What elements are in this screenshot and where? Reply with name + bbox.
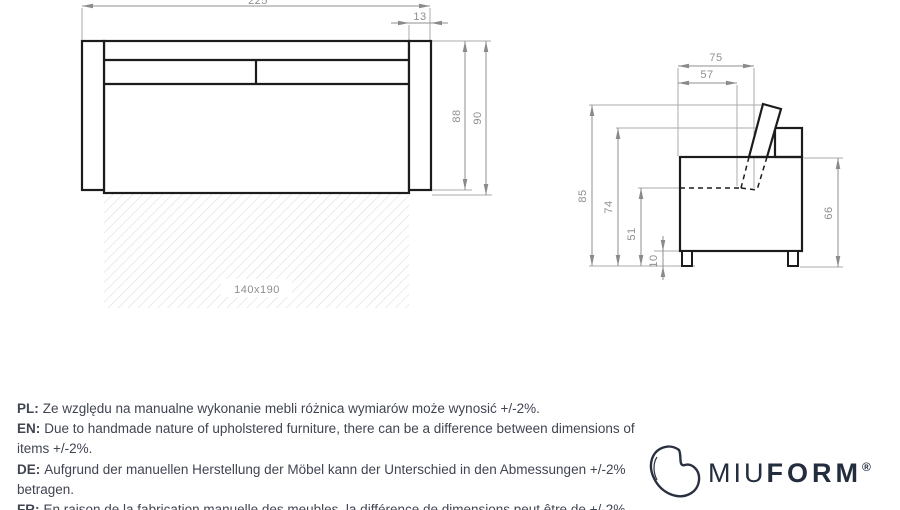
logo-miu: MIU: [708, 458, 767, 489]
note-fr-text: En raison de la fabrication manuelle des…: [44, 502, 629, 510]
note-de-text: Aufgrund der manuellen Herstellung der M…: [17, 462, 625, 497]
note-pl-label: PL:: [17, 401, 39, 416]
side-seat-depth-dim-label: 57: [700, 69, 713, 81]
sofa-front-left-armrest: [82, 41, 104, 190]
note-de-label: DE:: [17, 462, 40, 477]
side-total-height-dim-label: 85: [577, 189, 589, 202]
note-en-label: EN:: [17, 421, 40, 436]
registered-mark: ®: [862, 460, 873, 474]
front-body-height-dim-label: 88: [451, 109, 463, 122]
note-pl: PL:Ze względu na manualne wykonanie mebl…: [17, 399, 657, 419]
sofa-front-right-armrest: [409, 41, 431, 190]
front-width-dim-label: 225: [248, 0, 268, 7]
side-view: 75 57 85 74 51 10 66: [577, 52, 843, 280]
side-back-height-dim-label: 74: [603, 200, 615, 213]
front-total-height-dim-label: 90: [472, 111, 484, 124]
note-en: EN:Due to handmade nature of upholstered…: [17, 419, 657, 459]
note-de: DE:Aufgrund der manuellen Herstellung de…: [17, 460, 657, 500]
miuform-wordmark: MIUFORM®: [708, 458, 873, 489]
sofa-side-back: [775, 128, 802, 157]
note-fr-label: FR:: [17, 502, 40, 510]
side-seat-height-dim-label: 51: [626, 227, 638, 240]
miuform-logo: MIUFORM®: [648, 442, 894, 504]
sofa-front-outline: [82, 41, 431, 193]
sofa-side-rear-leg: [788, 251, 798, 266]
logo-form: FORM: [767, 458, 862, 489]
technical-drawing: 140x190 225 13: [0, 0, 900, 398]
furniture-dimension-sheet: 140x190 225 13: [0, 0, 900, 510]
side-depth-dim-label: 75: [709, 52, 722, 64]
front-armrest-dim-label: 13: [413, 11, 426, 23]
note-en-text: Due to handmade nature of upholstered fu…: [17, 421, 635, 456]
sofa-side-front-leg: [682, 251, 692, 266]
side-leg-height-dim-label: 10: [648, 254, 660, 267]
front-view: 140x190 225 13: [82, 0, 492, 308]
note-fr: FR:En raison de la fabrication manuelle …: [17, 500, 657, 510]
note-pl-text: Ze względu na manualne wykonanie mebli r…: [43, 401, 540, 416]
tolerance-notes: PL:Ze względu na manualne wykonanie mebl…: [17, 399, 657, 510]
side-height-right-dim-label: 66: [823, 206, 835, 219]
sofa-side-body: [680, 157, 802, 251]
mattress-size-label: 140x190: [234, 284, 280, 296]
miuform-bean-icon: [648, 444, 702, 502]
